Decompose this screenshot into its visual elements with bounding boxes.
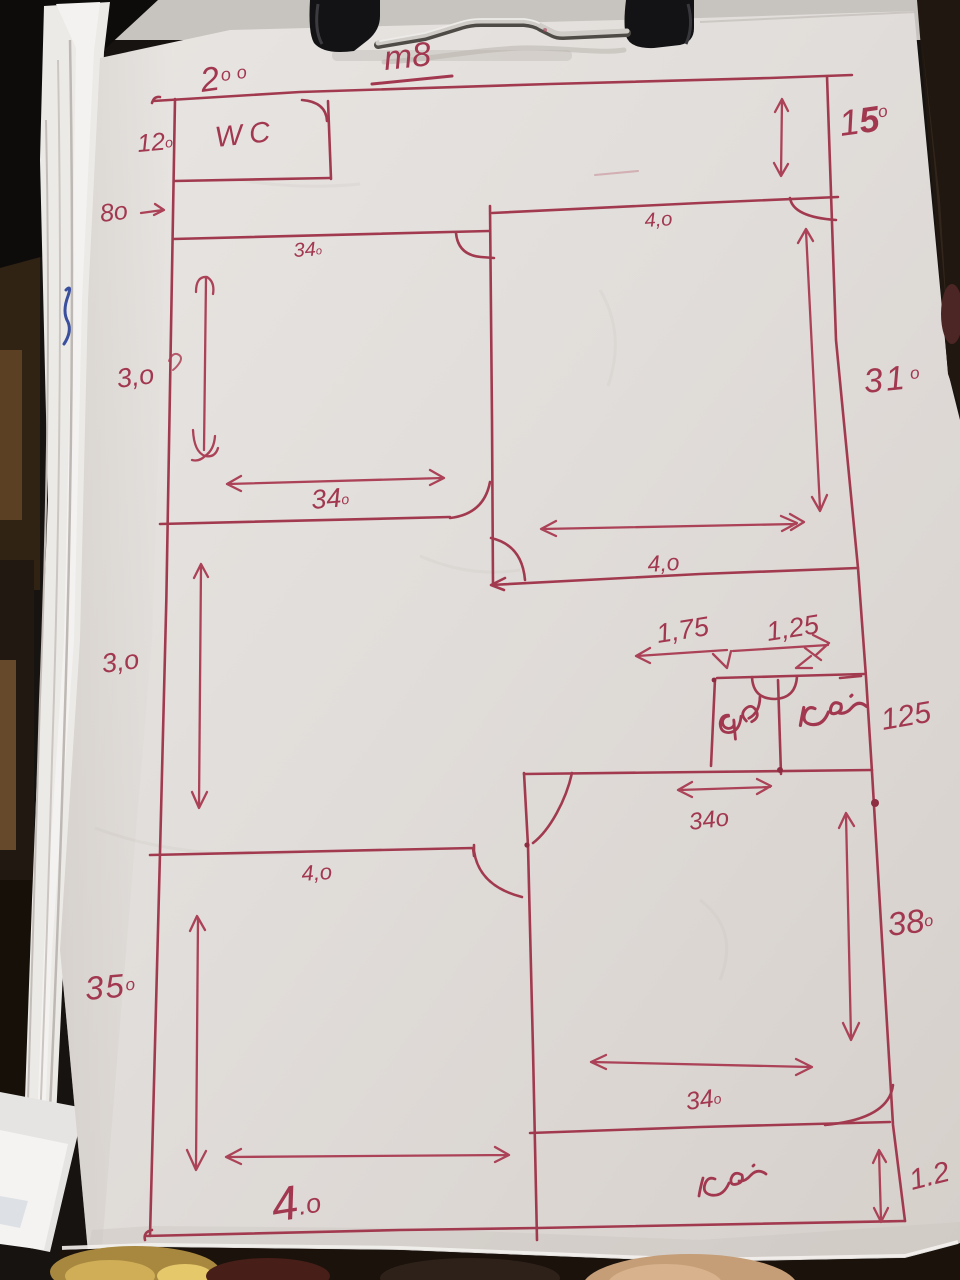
svg-text:WC: WC — [213, 116, 278, 154]
svg-text:4,o: 4,o — [647, 549, 681, 577]
svg-text:34o: 34o — [687, 804, 730, 836]
svg-text:m8: m8 — [382, 35, 433, 78]
svg-text:4,o: 4,o — [644, 208, 673, 232]
svg-text:3,o: 3,o — [100, 644, 141, 679]
svg-text:4,o: 4,o — [301, 859, 333, 886]
svg-text:8o: 8o — [98, 197, 129, 228]
svg-text:3,o: 3,o — [115, 359, 156, 394]
